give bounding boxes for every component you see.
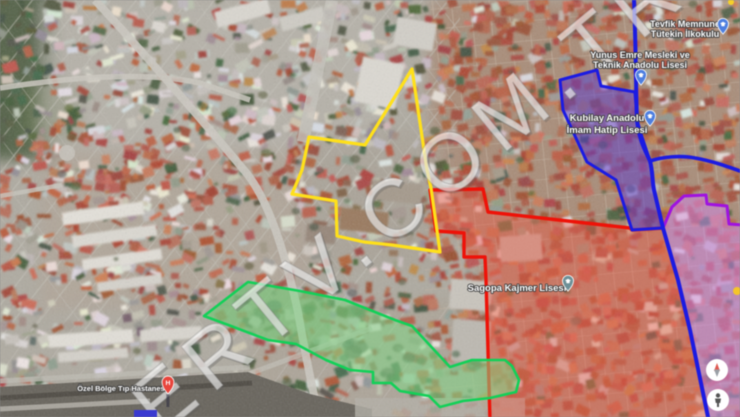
svg-text:İmam Hatip Lisesi: İmam Hatip Lisesi (567, 125, 648, 136)
svg-text:Tütekin İlkokulu: Tütekin İlkokulu (651, 29, 720, 39)
svg-text:Yunus Emre Mesleki ve: Yunus Emre Mesleki ve (590, 50, 690, 60)
svg-text:Kubilay Anadolu: Kubilay Anadolu (570, 113, 645, 124)
svg-text:Tevfik Memnune: Tevfik Memnune (650, 19, 720, 29)
svg-text:H: H (166, 380, 171, 387)
svg-text:Sagopa Kajmer Lisesi: Sagopa Kajmer Lisesi (468, 283, 567, 294)
svg-text:Özel Bölge Tıp Hastanesi: Özel Bölge Tıp Hastanesi (77, 384, 167, 393)
svg-text:Teknik Anadolu Lisesi: Teknik Anadolu Lisesi (593, 60, 687, 70)
